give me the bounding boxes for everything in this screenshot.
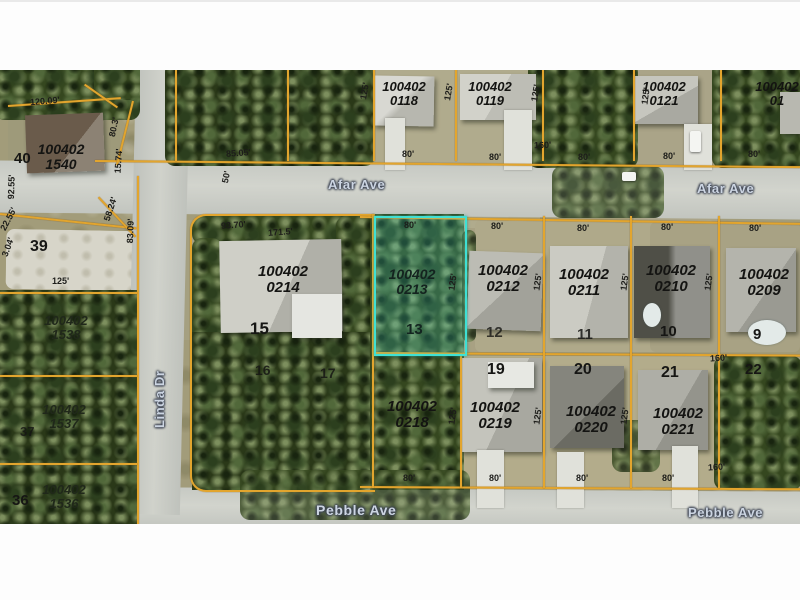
- parcel-boundary-line: [0, 375, 137, 377]
- open-sandy-lot: [5, 229, 134, 291]
- lot-number-22: 22: [745, 361, 762, 378]
- dim-label: 92.55': [6, 174, 17, 199]
- lot-number-19: 19: [487, 361, 505, 379]
- dim-label: 93.70': [221, 219, 246, 231]
- parcel-id-1540: 1004021540: [30, 142, 92, 171]
- dim-label: 160': [534, 140, 551, 151]
- parcel-id-0118: 1004020118: [376, 80, 432, 107]
- dim-label: 85.05': [226, 147, 251, 159]
- dim-label: 80': [748, 149, 760, 159]
- dim-label: 80': [578, 152, 590, 162]
- dim-label: 80': [663, 151, 675, 161]
- pool: [643, 303, 661, 327]
- lot-number-16: 16: [255, 362, 271, 378]
- driveway: [504, 110, 532, 170]
- dim-label: 80': [661, 222, 673, 232]
- dim-label: 80': [491, 221, 503, 231]
- parcel-boundary-line: [175, 70, 177, 161]
- lot-number-12: 12: [486, 324, 503, 341]
- parcel-id-0218: 1004020218: [380, 399, 444, 430]
- parcel-block-outline: [190, 214, 375, 492]
- dim-label: 80': [577, 223, 589, 233]
- lot-number-39: 39: [30, 238, 48, 256]
- dim-label: 80': [489, 473, 501, 483]
- street-label-pebble-ave-left: Pebble Ave: [316, 502, 396, 518]
- parcel-id-0221: 1004020221: [647, 406, 709, 437]
- lot-number-20: 20: [574, 361, 592, 379]
- parcel-id-0209: 1004020209: [733, 267, 795, 298]
- dim-label: 171.5': [268, 226, 293, 238]
- dim-label: 160': [708, 462, 726, 473]
- lot-number-13: 13: [406, 321, 423, 338]
- parcel-id-0219: 1004020219: [464, 400, 526, 431]
- dim-label: 83.09': [125, 218, 136, 243]
- lot-number-40: 40: [14, 150, 31, 167]
- parcel-id-1536: 1004021536: [36, 483, 92, 510]
- dim-label: 80': [749, 223, 761, 233]
- dim-label: 80': [404, 220, 416, 230]
- parcel-id-0220: 1004020220: [560, 404, 622, 435]
- parcel-boundary-line: [0, 463, 137, 465]
- parcel-boundary-line: [137, 176, 139, 524]
- lot-number-36: 36: [12, 492, 29, 509]
- parcel-id-0119: 1004020119: [462, 80, 518, 107]
- dim-label: 80': [402, 149, 414, 159]
- lot-number-11: 11: [577, 326, 593, 343]
- parcel-id-0214: 1004020214: [248, 264, 318, 295]
- parcel-id-1538: 1004021538: [38, 314, 94, 341]
- lot-number-21: 21: [661, 364, 679, 382]
- tree-canopy: [552, 166, 664, 218]
- parcel-boundary-line: [287, 70, 289, 161]
- parcel-id-1537: 1004021537: [36, 403, 92, 430]
- parcel-id-clipped: 10040201: [742, 80, 800, 107]
- car-on-road: [622, 172, 636, 181]
- parcel-boundary-line: [373, 70, 375, 161]
- lot-number-9: 9: [753, 326, 761, 343]
- street-label-afar-ave-left: Afar Ave: [328, 177, 385, 192]
- street-label-linda-dr: Linda Dr: [152, 370, 167, 428]
- aerial-map-canvas[interactable]: 1004020118 1004020119 1004020121 1004020…: [0, 70, 800, 524]
- street-label-afar-ave-right: Afar Ave: [697, 181, 754, 196]
- parcel-map-screenshot: 1004020118 1004020119 1004020121 1004020…: [0, 0, 800, 600]
- street-label-pebble-ave-right: Pebble Ave: [688, 505, 763, 520]
- dim-label: 80': [489, 152, 501, 162]
- parcel-boundary-line: [460, 353, 462, 488]
- parcel-id-0213: 1004020213: [380, 267, 444, 296]
- dim-label: 15.74': [112, 148, 124, 173]
- parcel-boundary-line: [720, 70, 722, 161]
- dim-label: 80': [576, 473, 588, 483]
- dim-label: 80': [403, 473, 415, 483]
- parcel-boundary-line: [0, 292, 137, 294]
- dim-label: 80': [662, 473, 674, 483]
- parcel-boundary-line: [633, 70, 635, 161]
- dim-label: 160': [710, 353, 728, 364]
- parcel-boundary-line: [630, 216, 632, 488]
- lot-number-10: 10: [660, 323, 677, 340]
- parcel-id-0210: 1004020210: [640, 263, 702, 294]
- top-border-line: [0, 0, 800, 2]
- parked-car: [690, 131, 701, 152]
- dim-label: 125': [52, 276, 69, 286]
- parcel-boundary-line: [455, 70, 457, 161]
- driveway: [672, 446, 698, 508]
- tree-canopy: [165, 70, 375, 166]
- parcel-id-0212: 1004020212: [472, 263, 534, 294]
- lot-number-17: 17: [320, 365, 336, 381]
- lot-number-15: 15: [250, 319, 269, 339]
- parcel-id-0211: 1004020211: [553, 267, 615, 298]
- lot-number-37: 37: [20, 424, 34, 439]
- parcel-boundary-line: [543, 216, 545, 488]
